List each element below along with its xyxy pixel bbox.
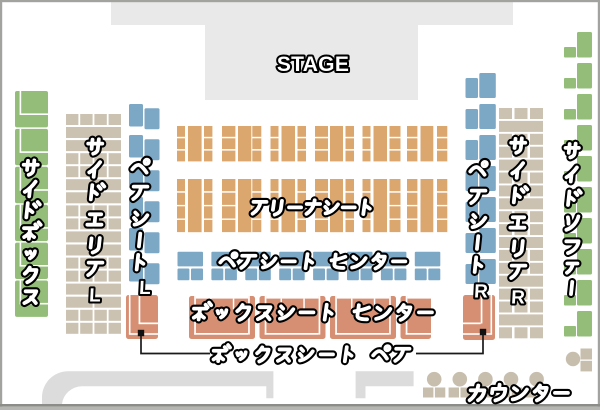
svg-text:R: R [474, 282, 489, 303]
svg-text:STAGE: STAGE [277, 53, 349, 76]
svg-text:L: L [89, 286, 102, 307]
svg-text:R: R [511, 288, 526, 309]
svg-text:L: L [139, 278, 152, 299]
